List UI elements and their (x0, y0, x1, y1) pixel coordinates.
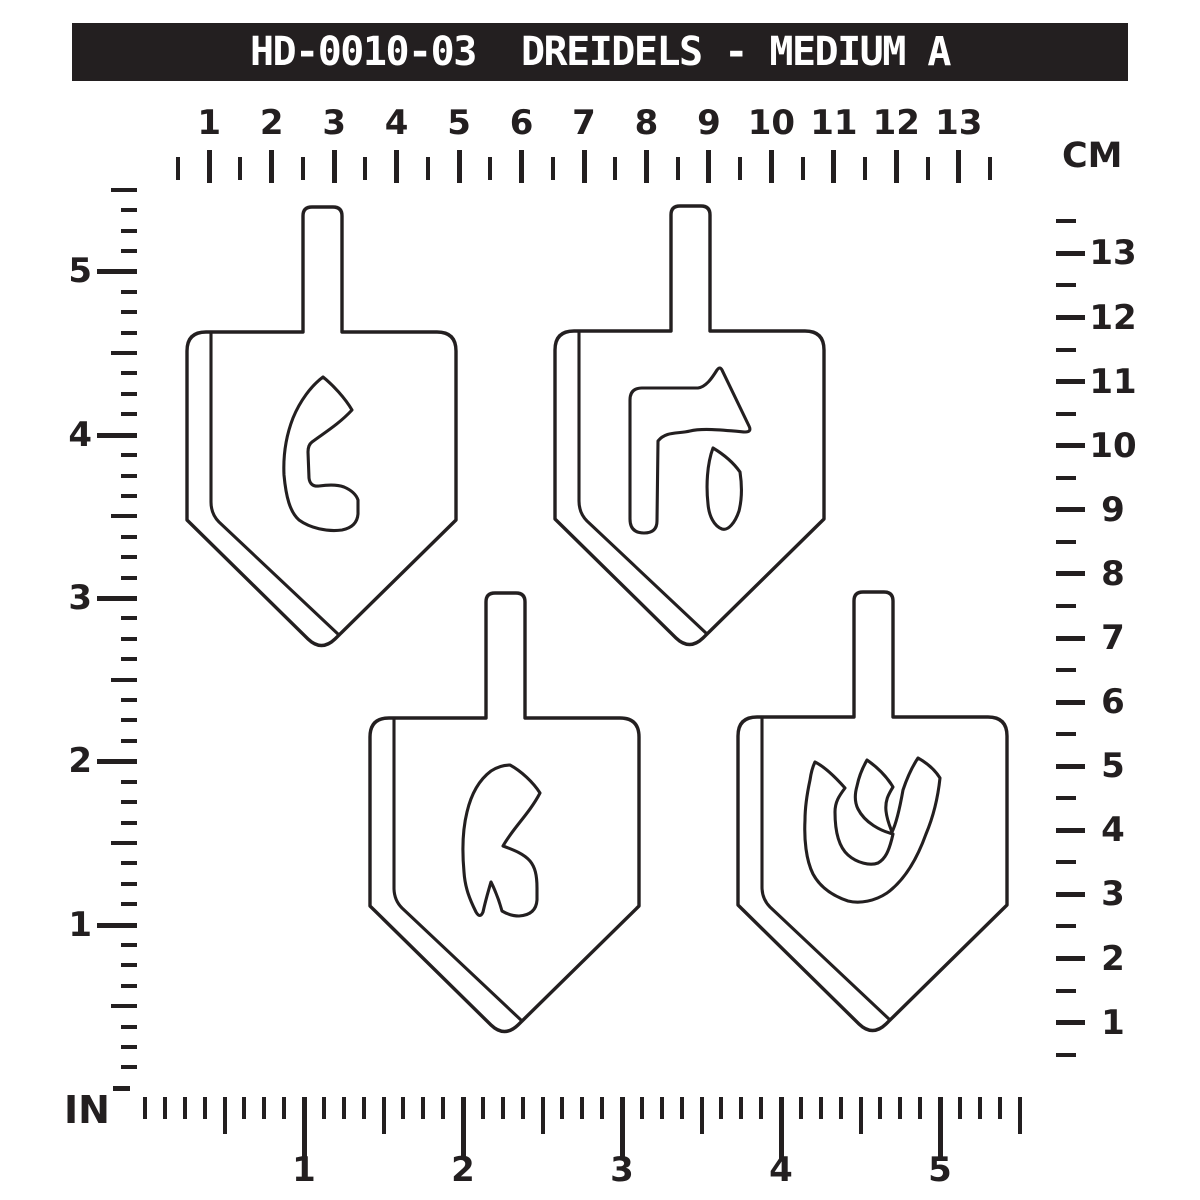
inch-tick-eighth (759, 1097, 763, 1119)
inch-tick-eighth (121, 800, 137, 804)
inch-tick-eighth (121, 861, 137, 865)
inch-tick-half (700, 1097, 704, 1134)
cm-tick-major (1056, 571, 1085, 576)
cm-tick-minor (551, 157, 555, 180)
inch-tick-eighth (121, 698, 137, 702)
inch-tick-major (97, 759, 137, 764)
cm-tick-major (706, 150, 711, 183)
inch-tick-eighth (421, 1097, 425, 1119)
cm-number: 4 (1088, 810, 1138, 850)
cm-number: 10 (741, 103, 801, 143)
cm-tick-major (1056, 315, 1085, 320)
inch-tick-eighth (501, 1097, 505, 1119)
cm-tick-minor (1056, 348, 1076, 352)
inch-tick-eighth (121, 1065, 137, 1069)
cm-number: 4 (367, 103, 427, 143)
cm-number: 7 (554, 103, 614, 143)
inch-tick-eighth (121, 371, 137, 375)
inch-number: 2 (433, 1150, 493, 1190)
inch-tick-eighth (121, 392, 137, 396)
cm-number: 10 (1088, 426, 1138, 466)
inch-tick-eighth (121, 821, 137, 825)
dreidel-bottom-left (367, 588, 643, 1040)
inch-tick-major (97, 433, 137, 438)
cm-tick-minor (238, 157, 242, 180)
inch-tick-eighth (282, 1097, 286, 1119)
cm-tick-major (207, 150, 212, 183)
cm-tick-minor (426, 157, 430, 180)
inch-tick-eighth (121, 739, 137, 743)
cm-tick-minor (926, 157, 930, 180)
inch-tick-eighth (121, 208, 137, 212)
cm-number: 1 (179, 103, 239, 143)
cm-tick-minor (1056, 540, 1076, 544)
inch-number: 1 (32, 905, 92, 945)
inch-tick-half (223, 1097, 227, 1134)
cm-tick-minor (1056, 732, 1076, 736)
inch-tick-eighth (600, 1097, 604, 1119)
cm-number: 2 (242, 103, 302, 143)
cm-number: 2 (1088, 939, 1138, 979)
cm-tick-major (1056, 828, 1085, 833)
cm-tick-minor (176, 157, 180, 180)
inch-tick-eighth (121, 984, 137, 988)
inch-number: 4 (751, 1150, 811, 1190)
cm-number: 11 (804, 103, 864, 143)
cm-number: 12 (866, 103, 926, 143)
inch-tick-eighth (580, 1097, 584, 1119)
cm-tick-major (1056, 764, 1085, 769)
cm-number: 9 (679, 103, 739, 143)
cm-number: 11 (1088, 362, 1138, 402)
cm-tick-major (1056, 379, 1085, 384)
title-bar: HD-0010-03 DREIDELS - MEDIUM A (72, 23, 1128, 81)
inch-tick-eighth (121, 576, 137, 580)
title-text: HD-0010-03 DREIDELS - MEDIUM A (250, 29, 950, 75)
inch-tick-eighth (121, 412, 137, 416)
inch-tick-half (859, 1097, 863, 1134)
inch-tick-eighth (121, 229, 137, 233)
inch-tick-half (111, 514, 137, 518)
inch-tick-eighth (560, 1097, 564, 1119)
cm-tick-major (1056, 892, 1085, 897)
dreidel-bottom-right (735, 587, 1011, 1039)
inch-number: 3 (592, 1150, 652, 1190)
dreidel-top-right (552, 201, 828, 653)
inch-tick-eighth (918, 1097, 922, 1119)
cm-tick-major (644, 150, 649, 183)
dreidel-shape-hey (552, 201, 828, 653)
inch-tick-eighth (121, 657, 137, 661)
inch-tick-eighth (121, 780, 137, 784)
inch-tick-half (111, 188, 137, 192)
inch-tick-eighth (799, 1097, 803, 1119)
cm-tick-minor (676, 157, 680, 180)
inch-tick-eighth (121, 616, 137, 620)
inch-tick-eighth (121, 494, 137, 498)
cm-tick-minor (363, 157, 367, 180)
cm-tick-minor (613, 157, 617, 180)
cm-number: 6 (492, 103, 552, 143)
cm-tick-minor (801, 157, 805, 180)
cm-tick-minor (1056, 219, 1076, 223)
cm-unit-label: CM (1062, 136, 1123, 176)
cm-tick-major (769, 150, 774, 183)
cm-tick-minor (488, 157, 492, 180)
cm-number: 13 (929, 103, 989, 143)
inch-tick-eighth (121, 637, 137, 641)
cm-tick-major (1056, 251, 1085, 256)
inch-tick-eighth (121, 902, 137, 906)
cm-tick-minor (1056, 668, 1076, 672)
inch-tick-major (97, 269, 137, 274)
inch-tick-major (97, 923, 137, 928)
cm-tick-major (394, 150, 399, 183)
inch-tick-eighth (878, 1097, 882, 1119)
inch-tick-eighth (121, 1025, 137, 1029)
cm-tick-minor (301, 157, 305, 180)
inch-tick-eighth (121, 310, 137, 314)
inch-tick-eighth (121, 453, 137, 457)
cm-tick-minor (1056, 412, 1076, 416)
inch-tick-eighth (242, 1097, 246, 1119)
inch-tick-eighth (401, 1097, 405, 1119)
cm-tick-major (1056, 507, 1085, 512)
cm-number: 12 (1088, 298, 1138, 338)
cm-number: 8 (1088, 554, 1138, 594)
cm-tick-major (1056, 956, 1085, 961)
dreidel-shape-shin (735, 587, 1011, 1039)
cm-tick-major (519, 150, 524, 183)
cm-number: 8 (616, 103, 676, 143)
inch-tick-half (1018, 1097, 1022, 1134)
inch-tick-half (111, 841, 137, 845)
cm-number: 3 (1088, 874, 1138, 914)
cm-number: 7 (1088, 618, 1138, 658)
dreidel-shape-nun (184, 202, 460, 654)
inch-tick-eighth (121, 474, 137, 478)
in-unit-label: IN (64, 1088, 110, 1132)
inch-number: 5 (910, 1150, 970, 1190)
inch-tick-eighth (121, 331, 137, 335)
cm-tick-major (457, 150, 462, 183)
inch-tick-eighth (143, 1097, 147, 1119)
cm-number: 5 (1088, 746, 1138, 786)
cm-tick-major (582, 150, 587, 183)
cm-tick-minor (1056, 796, 1076, 800)
inch-tick-eighth (203, 1097, 207, 1119)
inch-tick-eighth (121, 290, 137, 294)
cm-number: 3 (304, 103, 364, 143)
inch-tick-eighth (121, 555, 137, 559)
cm-tick-major (894, 150, 899, 183)
cm-tick-minor (1056, 1053, 1076, 1057)
inch-tick-eighth (362, 1097, 366, 1119)
inch-number: 3 (32, 578, 92, 618)
cm-tick-major (956, 150, 961, 183)
inch-tick-eighth (819, 1097, 823, 1119)
cm-tick-major (831, 150, 836, 183)
inch-number: 2 (32, 741, 92, 781)
inch-tick-eighth (978, 1097, 982, 1119)
cm-tick-major (1056, 636, 1085, 641)
cm-tick-major (1056, 443, 1085, 448)
inch-tick-eighth (262, 1097, 266, 1119)
inch-tick-eighth (481, 1097, 485, 1119)
inch-tick-eighth (183, 1097, 187, 1119)
cm-number: 6 (1088, 682, 1138, 722)
inch-tick-eighth (898, 1097, 902, 1119)
cm-tick-minor (1056, 604, 1076, 608)
inch-tick-eighth (121, 535, 137, 539)
dreidel-shape-gimel (367, 588, 643, 1040)
inch-tick-eighth (660, 1097, 664, 1119)
inch-tick-eighth (121, 963, 137, 967)
inch-tick-eighth (121, 943, 137, 947)
inch-number: 4 (32, 415, 92, 455)
inch-number: 1 (274, 1150, 334, 1190)
inch-tick-eighth (342, 1097, 346, 1119)
inch-tick-eighth (322, 1097, 326, 1119)
cm-tick-major (1056, 1020, 1085, 1025)
cm-tick-minor (1056, 476, 1076, 480)
cm-tick-minor (1056, 860, 1076, 864)
inch-tick-eighth (163, 1097, 167, 1119)
inch-tick-eighth (739, 1097, 743, 1119)
cm-tick-minor (738, 157, 742, 180)
inch-tick-eighth (121, 249, 137, 253)
cm-number: 1 (1088, 1003, 1138, 1043)
inch-tick-eighth (839, 1097, 843, 1119)
cm-tick-minor (863, 157, 867, 180)
inch-tick-major (97, 596, 137, 601)
ruler-start-dash (113, 1086, 130, 1091)
cm-number: 13 (1088, 233, 1138, 273)
inch-tick-eighth (719, 1097, 723, 1119)
cm-tick-major (269, 150, 274, 183)
inch-tick-eighth (680, 1097, 684, 1119)
cm-tick-major (1056, 700, 1085, 705)
inch-tick-eighth (640, 1097, 644, 1119)
inch-tick-eighth (958, 1097, 962, 1119)
cm-tick-minor (1056, 989, 1076, 993)
cm-tick-minor (988, 157, 992, 180)
cm-tick-minor (1056, 924, 1076, 928)
cm-number: 5 (429, 103, 489, 143)
die-cut-template-sheet: HD-0010-03 DREIDELS - MEDIUM A 123456789… (0, 0, 1200, 1200)
cm-number: 9 (1088, 490, 1138, 530)
inch-number: 5 (32, 251, 92, 291)
inch-tick-half (111, 351, 137, 355)
inch-tick-eighth (521, 1097, 525, 1119)
inch-tick-half (111, 1004, 137, 1008)
inch-tick-half (111, 678, 137, 682)
inch-tick-eighth (121, 882, 137, 886)
cm-tick-major (332, 150, 337, 183)
inch-tick-eighth (441, 1097, 445, 1119)
inch-tick-eighth (121, 1045, 137, 1049)
dreidel-top-left (184, 202, 460, 654)
inch-tick-half (541, 1097, 545, 1134)
inch-tick-half (382, 1097, 386, 1134)
cm-tick-minor (1056, 283, 1076, 287)
inch-tick-eighth (998, 1097, 1002, 1119)
inch-tick-eighth (121, 718, 137, 722)
